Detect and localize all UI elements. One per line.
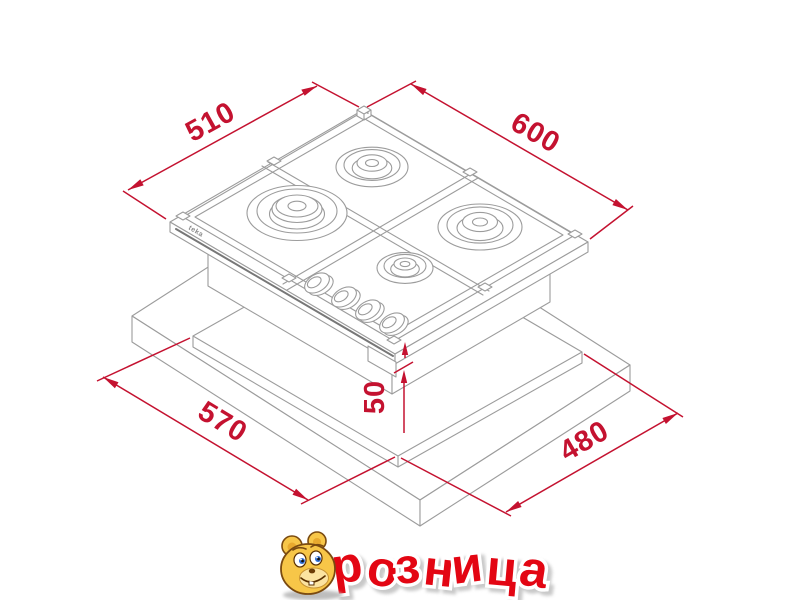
dim-510-label: 510 <box>180 96 240 149</box>
dim-50-label: 50 <box>359 380 391 414</box>
dim-570-arrow-left <box>103 377 119 388</box>
dim-480-arrow-left <box>506 501 522 512</box>
dim-600-arrow-right <box>612 199 628 210</box>
dim-510-arrow-right <box>301 86 317 96</box>
burner-back-center <box>336 147 408 187</box>
bear-nose <box>309 569 315 574</box>
dim-600-label: 600 <box>505 107 566 160</box>
burner-right <box>438 204 522 250</box>
dim-600-arrow-left <box>411 84 427 95</box>
burner-back-left <box>247 186 347 241</box>
dim-480-arrow-right <box>662 413 678 424</box>
burner-front-center <box>377 253 433 284</box>
dim-570-arrow-right <box>293 489 309 500</box>
installation-drawing: 570 480 <box>0 0 800 600</box>
dim-510-arrow-left <box>128 179 144 190</box>
screenshot-canvas: 570 480 <box>0 0 800 600</box>
roznitsa-logo: розница розница <box>281 532 557 600</box>
